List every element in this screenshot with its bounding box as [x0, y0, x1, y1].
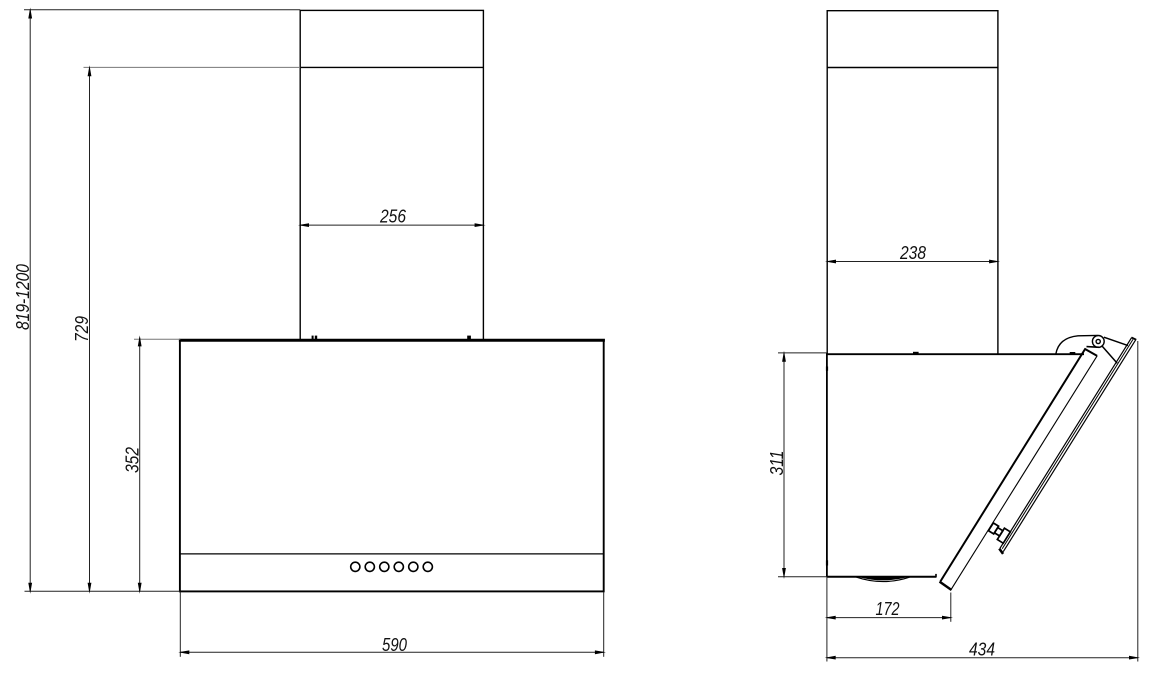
svg-text:729: 729: [72, 316, 92, 342]
svg-text:819-1200: 819-1200: [13, 264, 33, 330]
svg-text:434: 434: [969, 639, 995, 659]
svg-text:172: 172: [876, 599, 900, 619]
svg-text:352: 352: [122, 447, 142, 473]
svg-text:311: 311: [767, 451, 787, 476]
svg-text:238: 238: [899, 243, 926, 263]
svg-text:256: 256: [379, 207, 407, 227]
svg-text:590: 590: [382, 635, 407, 655]
